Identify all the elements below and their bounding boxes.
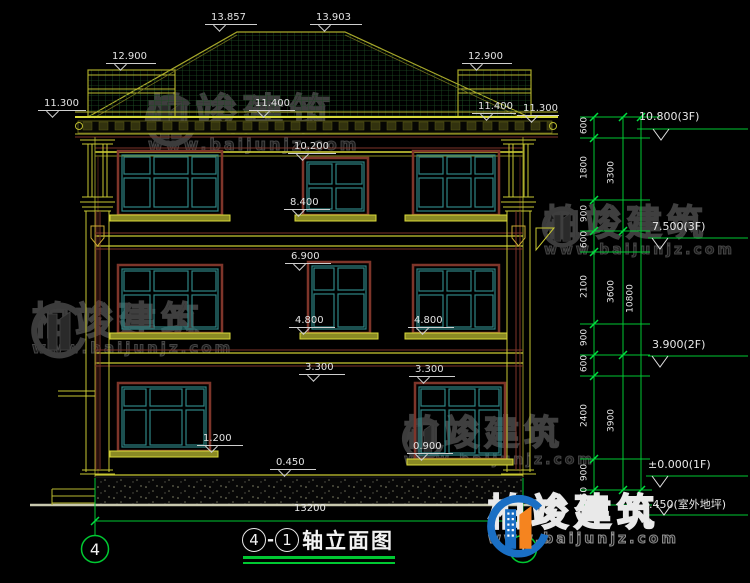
dim-parapet-band: 10.200: [288, 141, 336, 159]
brand-logo-icon: [482, 494, 548, 564]
roof: [88, 32, 531, 118]
dim-head-1f-right: 3.300: [409, 364, 455, 382]
dim-head-1f-left: 3.300: [299, 362, 345, 380]
dim-plinth-top: 0.450: [270, 457, 316, 475]
title-dash: -: [267, 530, 274, 550]
dim-10800: 10800: [627, 277, 636, 321]
dim-head-2f: 6.900: [285, 251, 331, 269]
level-3f: 7.500(3F): [652, 220, 705, 233]
dim-peak-right: 13.903: [310, 12, 362, 30]
dim-sill-2f-left: 4.800: [289, 315, 335, 333]
dim-eave-left: 11.300: [38, 98, 86, 116]
dim-13200: 13200: [294, 503, 326, 514]
dim-600: 600: [581, 342, 590, 386]
dim-eave-right: 11.300: [517, 103, 559, 121]
brand-logo: 柏竣建筑 www.baijunjz.com: [482, 494, 679, 549]
dim-eave-mid-left: 11.400: [249, 98, 295, 116]
dim-roof-upper-left: 12.900: [106, 51, 156, 69]
level-1f: ±0.000(1F): [648, 458, 711, 471]
dim-sill-3f: 8.400: [284, 197, 330, 215]
dim-3300: 3300: [608, 151, 617, 195]
dim-2100: 2100: [581, 265, 590, 309]
dim-eave-mid-right: 11.400: [472, 101, 516, 119]
dim-roof-upper-right: 12.900: [462, 51, 512, 69]
dim-600: 600: [581, 218, 590, 262]
dim-sill-1f-right: 0.900: [407, 441, 453, 459]
level-2f: 3.900(2F): [652, 338, 705, 351]
dim-600: 600: [581, 104, 590, 148]
dim-sill-2f-right: 4.800: [408, 315, 454, 333]
pilasters: [80, 140, 554, 474]
title-axis-start: 4: [242, 528, 266, 552]
title-text: 轴立面图: [302, 525, 394, 555]
title-axis-end: 1: [275, 528, 299, 552]
dim-3600: 3600: [608, 270, 617, 314]
dim-3900: 3900: [608, 399, 617, 443]
title-underline-thin: [243, 562, 395, 564]
cad-elevation-drawing: 柏竣建筑 www.baijunjz.com 柏竣建筑 www.baijunjz.…: [0, 0, 750, 583]
dim-1800: 1800: [581, 146, 590, 190]
dim-2400: 2400: [581, 394, 590, 438]
dim-peak-left: 13.857: [205, 12, 257, 30]
drawing-title: 4 - 1 轴立面图: [242, 525, 394, 555]
level-roof: 10.800(3F): [639, 110, 699, 123]
dim-sill-1f-left: 1.200: [197, 433, 243, 451]
title-underline-thick: [243, 556, 395, 559]
axis-bubble-4: 4: [81, 540, 109, 559]
